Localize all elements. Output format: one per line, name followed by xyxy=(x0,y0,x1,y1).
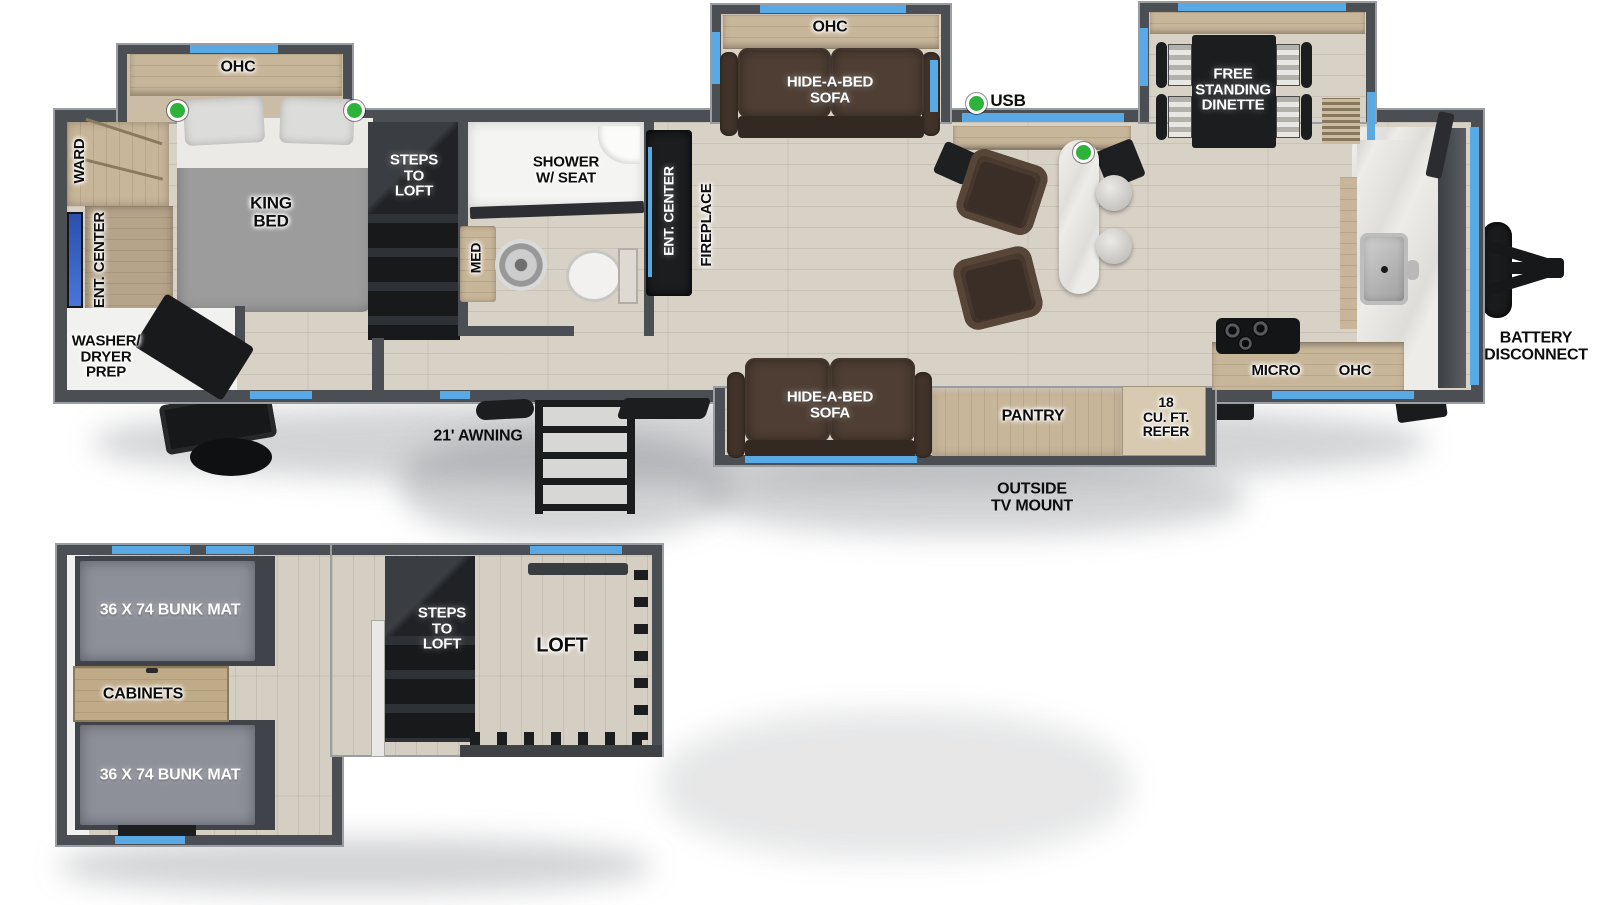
kitchen-faucet xyxy=(1406,260,1419,280)
label-loft-steps: STEPS TO LOFT xyxy=(418,606,466,653)
awning-roller-right xyxy=(617,398,712,419)
dinette-chair-back-1 xyxy=(1156,42,1167,88)
island-stool-1 xyxy=(1096,175,1132,211)
pillow-right xyxy=(279,97,355,146)
label-living-ent-center: ENT. CENTER xyxy=(662,166,677,256)
toilet-bowl xyxy=(566,250,622,302)
label-usb: USB xyxy=(990,92,1025,110)
pillow-left xyxy=(183,96,265,146)
dinette-chair-back-4 xyxy=(1301,94,1312,140)
stove-burner-1 xyxy=(1224,322,1241,339)
label-outside-tv: OUTSIDE TV MOUNT xyxy=(991,481,1073,514)
loft-right-wall-hatches xyxy=(634,570,648,740)
bath-wall-bottom xyxy=(458,326,574,336)
sofa-slide-window-left xyxy=(712,32,720,84)
kitchen-bottom-window xyxy=(1272,391,1414,399)
dinette-slide-window-top xyxy=(1178,3,1346,11)
armchair-1-seat xyxy=(966,160,1037,226)
loft-window-top-2 xyxy=(206,546,254,554)
loft-railing-bar xyxy=(460,745,662,757)
dinette-chair-back-3 xyxy=(1301,42,1312,88)
living-ent-tv-edge xyxy=(648,147,652,277)
label-shower: SHOWER W/ SEAT xyxy=(533,154,599,185)
counter-window xyxy=(962,113,1124,122)
hitch-stub xyxy=(1508,262,1538,274)
label-top-hide-a-bed: HIDE-A-BED SOFA xyxy=(787,74,873,105)
usb-counter xyxy=(953,126,1131,150)
label-refer: 18 CU. FT. REFER xyxy=(1143,395,1189,439)
dinette-chair-cushion-4 xyxy=(1276,96,1300,138)
loft-window-shade xyxy=(528,563,628,575)
stairs-lower-wall xyxy=(372,338,384,392)
bath-sink xyxy=(495,239,547,291)
label-awning: 21' AWNING xyxy=(433,429,522,446)
armchair-2-seat xyxy=(964,258,1033,322)
usb-indicator-bed-left xyxy=(167,100,188,121)
bedroom-tv xyxy=(67,212,83,308)
kitchen-sink-drain xyxy=(1381,266,1388,273)
usb-indicator-bed-right xyxy=(344,100,365,121)
stove-burner-2 xyxy=(1252,320,1269,337)
label-loft: LOFT xyxy=(536,636,587,657)
loft-room-window xyxy=(530,546,622,554)
label-washer-dryer: WASHER/ DRYER PREP xyxy=(72,334,141,381)
shadow-under-bottom-slide xyxy=(705,460,1245,535)
bunk-storage-hatch xyxy=(118,824,196,836)
toilet-tank xyxy=(618,248,638,304)
dinette-chair-cushion-1 xyxy=(1168,44,1192,86)
awning-roller-left xyxy=(476,398,535,420)
loft-window-bottom xyxy=(115,836,185,844)
main-stairs-steps xyxy=(368,214,460,340)
sofa-slide-window-right xyxy=(930,60,938,112)
label-fireplace: FIREPLACE xyxy=(699,183,715,266)
usb-indicator-counter xyxy=(966,93,987,114)
loft-stairs-partition xyxy=(371,620,385,757)
label-bunk-top: 36 X 74 BUNK MAT xyxy=(100,603,241,620)
bedroom-bottom-window xyxy=(250,391,312,399)
entry-side-window xyxy=(440,391,470,399)
dinette-slide-window-right xyxy=(1367,92,1375,140)
stove-burner-3 xyxy=(1238,336,1253,351)
label-bunk-bottom: 36 X 74 BUNK MAT xyxy=(100,768,241,785)
top-sofa-seat xyxy=(738,116,924,138)
label-battery-disconnect: BATTERY DISCONNECT xyxy=(1484,330,1588,363)
kitchen-cabinet-fronts xyxy=(1340,177,1358,329)
dinette-chair-cushion-2 xyxy=(1168,96,1192,138)
label-dinette: FREE STANDING DINETTE xyxy=(1195,67,1271,114)
label-bedroom-ent-center: ENT. CENTER xyxy=(92,212,108,308)
label-kitchen-ohc: OHC xyxy=(1339,363,1372,379)
kitchen-island xyxy=(1059,140,1099,294)
shadow-right-of-loft xyxy=(660,710,1130,860)
label-ward: WARD xyxy=(72,138,88,183)
bottom-slide-window xyxy=(745,456,917,463)
label-sofa-ohc: OHC xyxy=(813,20,848,37)
dinette-chair-back-2 xyxy=(1156,94,1167,140)
label-med: MED xyxy=(469,243,484,274)
bottom-sofa-arm-right xyxy=(914,372,932,458)
cabinet-handle xyxy=(146,668,158,673)
label-bedroom-ohc: OHC xyxy=(221,60,256,77)
rear-step-base xyxy=(190,438,272,476)
usb-indicator-island xyxy=(1073,142,1094,163)
sofa-slide-window-top xyxy=(760,5,906,13)
shadow-under-loft xyxy=(60,838,650,893)
label-micro: MICRO xyxy=(1252,363,1301,379)
label-pantry: PANTRY xyxy=(1002,409,1065,426)
front-wall-window xyxy=(1470,127,1479,385)
floorplan-stage: OHC WARD ENT. CENTER KING BED WASHER/ DR… xyxy=(0,0,1600,905)
hitch-coupler xyxy=(1538,258,1564,278)
bedroom-slide-window xyxy=(190,45,278,53)
dinette-window-blind xyxy=(1322,98,1360,144)
top-sofa-arm-left xyxy=(720,52,738,136)
dinette-chair-cushion-3 xyxy=(1276,44,1300,86)
loft-railing-hatches xyxy=(470,732,652,745)
loft-window-top-1 xyxy=(112,546,190,554)
bottom-sofa-arm-left xyxy=(727,372,745,458)
dinette-slide-shelf xyxy=(1150,12,1365,34)
label-main-steps: STEPS TO LOFT xyxy=(390,153,438,200)
label-bottom-hide-a-bed: HIDE-A-BED SOFA xyxy=(787,389,873,420)
label-cabinets: CABINETS xyxy=(103,687,183,704)
label-king-bed: KING BED xyxy=(250,194,292,229)
dinette-slide-window-left xyxy=(1140,28,1148,86)
island-stool-2 xyxy=(1096,228,1132,264)
